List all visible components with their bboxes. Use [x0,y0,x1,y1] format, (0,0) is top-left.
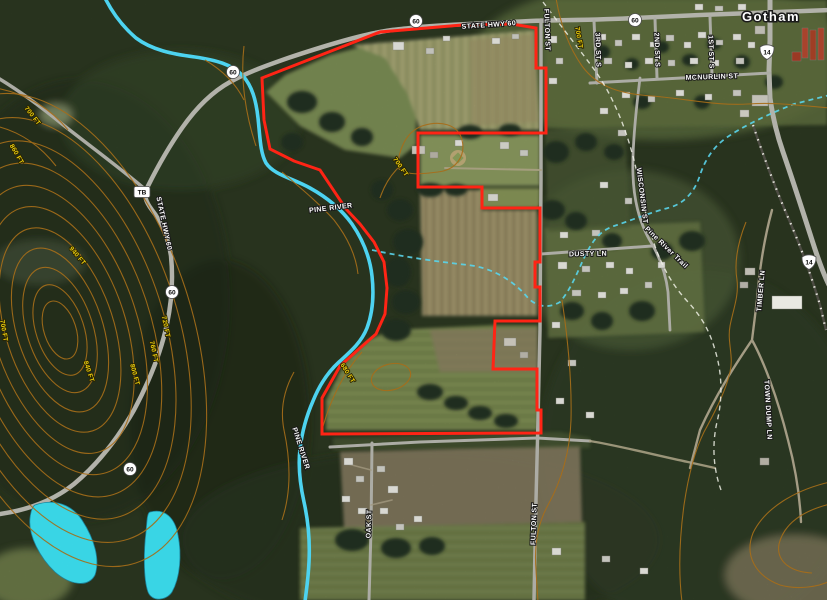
texture-overlay [0,0,827,600]
map-canvas[interactable]: 60 60 60 60 60 TB 14 14 Gotham STATE HWY… [0,0,827,600]
map-viewport[interactable]: 60 60 60 60 60 TB 14 14 Gotham STATE HWY… [0,0,827,600]
